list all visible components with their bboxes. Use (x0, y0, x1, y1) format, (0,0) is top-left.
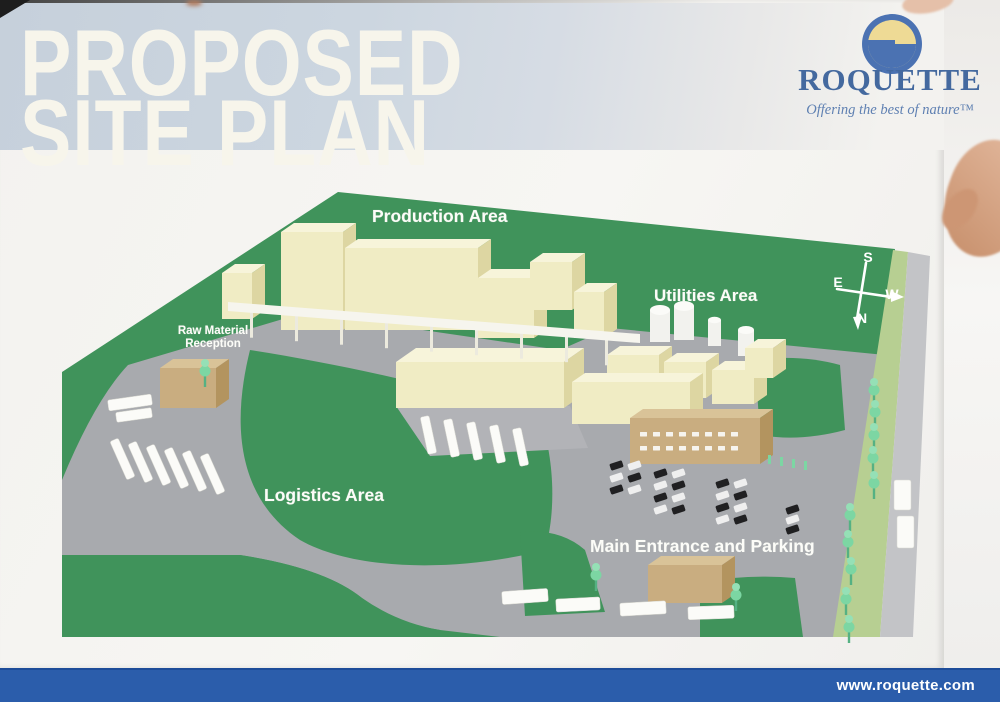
tree (846, 503, 854, 511)
tree (868, 453, 879, 464)
tree (592, 563, 600, 571)
conveyor-leg (605, 339, 608, 365)
tree (870, 471, 878, 479)
conveyor-leg (520, 333, 523, 359)
compass-letter-w: W (877, 286, 907, 302)
window (640, 432, 647, 437)
tree (870, 378, 878, 386)
brand-name: ROQUETTE (788, 62, 992, 98)
tree (591, 570, 602, 581)
window (731, 432, 738, 437)
compass-letter-e: E (823, 274, 853, 290)
bush (792, 459, 795, 468)
label-logistics-area: Logistics Area (264, 485, 384, 506)
tree (844, 622, 855, 633)
photo-smudge (186, 0, 202, 6)
tree (842, 587, 850, 595)
window (705, 446, 712, 451)
tree (200, 366, 211, 377)
tree (845, 510, 856, 521)
window (666, 432, 673, 437)
window (640, 446, 647, 451)
building-roof (572, 373, 703, 382)
tree (732, 583, 740, 591)
building-roof (630, 409, 773, 418)
building (396, 362, 564, 408)
building-roof (345, 239, 491, 248)
window (653, 432, 660, 437)
raw-material-line-2: Reception (185, 338, 241, 350)
tree (870, 407, 881, 418)
building-roof (281, 223, 356, 232)
website-url: www.roquette.com (837, 670, 975, 701)
tree (870, 423, 878, 431)
truck (897, 516, 914, 548)
tree (869, 430, 880, 441)
tree (869, 385, 880, 396)
compass-letter-s: S (853, 249, 883, 265)
truck (620, 601, 667, 616)
tree (841, 594, 852, 605)
tree (869, 446, 877, 454)
tank (674, 306, 694, 340)
window (692, 432, 699, 437)
conveyor-leg (385, 322, 388, 348)
tree (845, 615, 853, 623)
conveyor-leg (475, 329, 478, 355)
label-raw-material-reception: Raw Material Reception (152, 325, 274, 351)
compass-letter-n: N (847, 310, 877, 326)
label-production-area: Production Area (372, 206, 507, 227)
window (679, 432, 686, 437)
brand-tagline: Offering the best of nature™ (780, 102, 1000, 119)
window (718, 432, 725, 437)
label-main-entrance-parking: Main Entrance and Parking (590, 536, 815, 557)
tree (844, 530, 852, 538)
window (653, 446, 660, 451)
building (630, 418, 760, 464)
tree (846, 564, 857, 575)
building-roof (648, 556, 735, 565)
conveyor-leg (430, 326, 433, 352)
tank-top (738, 326, 754, 334)
conveyor-leg (340, 319, 343, 345)
bush (768, 455, 771, 464)
conveyor-leg (295, 315, 298, 341)
raw-material-line-1: Raw Material (178, 325, 248, 337)
bush (804, 461, 807, 470)
building (648, 565, 722, 603)
building (530, 262, 572, 310)
window (679, 446, 686, 451)
building (745, 348, 773, 378)
bush (780, 457, 783, 466)
tree (871, 400, 879, 408)
window (705, 432, 712, 437)
tree (847, 557, 855, 565)
conveyor-leg (565, 336, 568, 362)
footer-bar: www.roquette.com (0, 668, 1000, 702)
poster-top-edge (0, 0, 720, 3)
window (731, 446, 738, 451)
building-side (604, 283, 617, 338)
building-side (760, 409, 773, 464)
window (666, 446, 673, 451)
tree (869, 478, 880, 489)
tree (731, 590, 742, 601)
building-roof (396, 348, 584, 362)
tank-top (650, 305, 670, 315)
truck (688, 605, 734, 620)
tree (843, 537, 854, 548)
truck (556, 597, 601, 612)
label-utilities-area: Utilities Area (654, 286, 757, 306)
truck (894, 480, 911, 510)
tank (708, 320, 721, 346)
window (718, 446, 725, 451)
site-plan-rendering (0, 150, 1000, 670)
window (692, 446, 699, 451)
tree (201, 359, 209, 367)
logo-bar (868, 40, 895, 45)
tank-top (708, 317, 721, 324)
